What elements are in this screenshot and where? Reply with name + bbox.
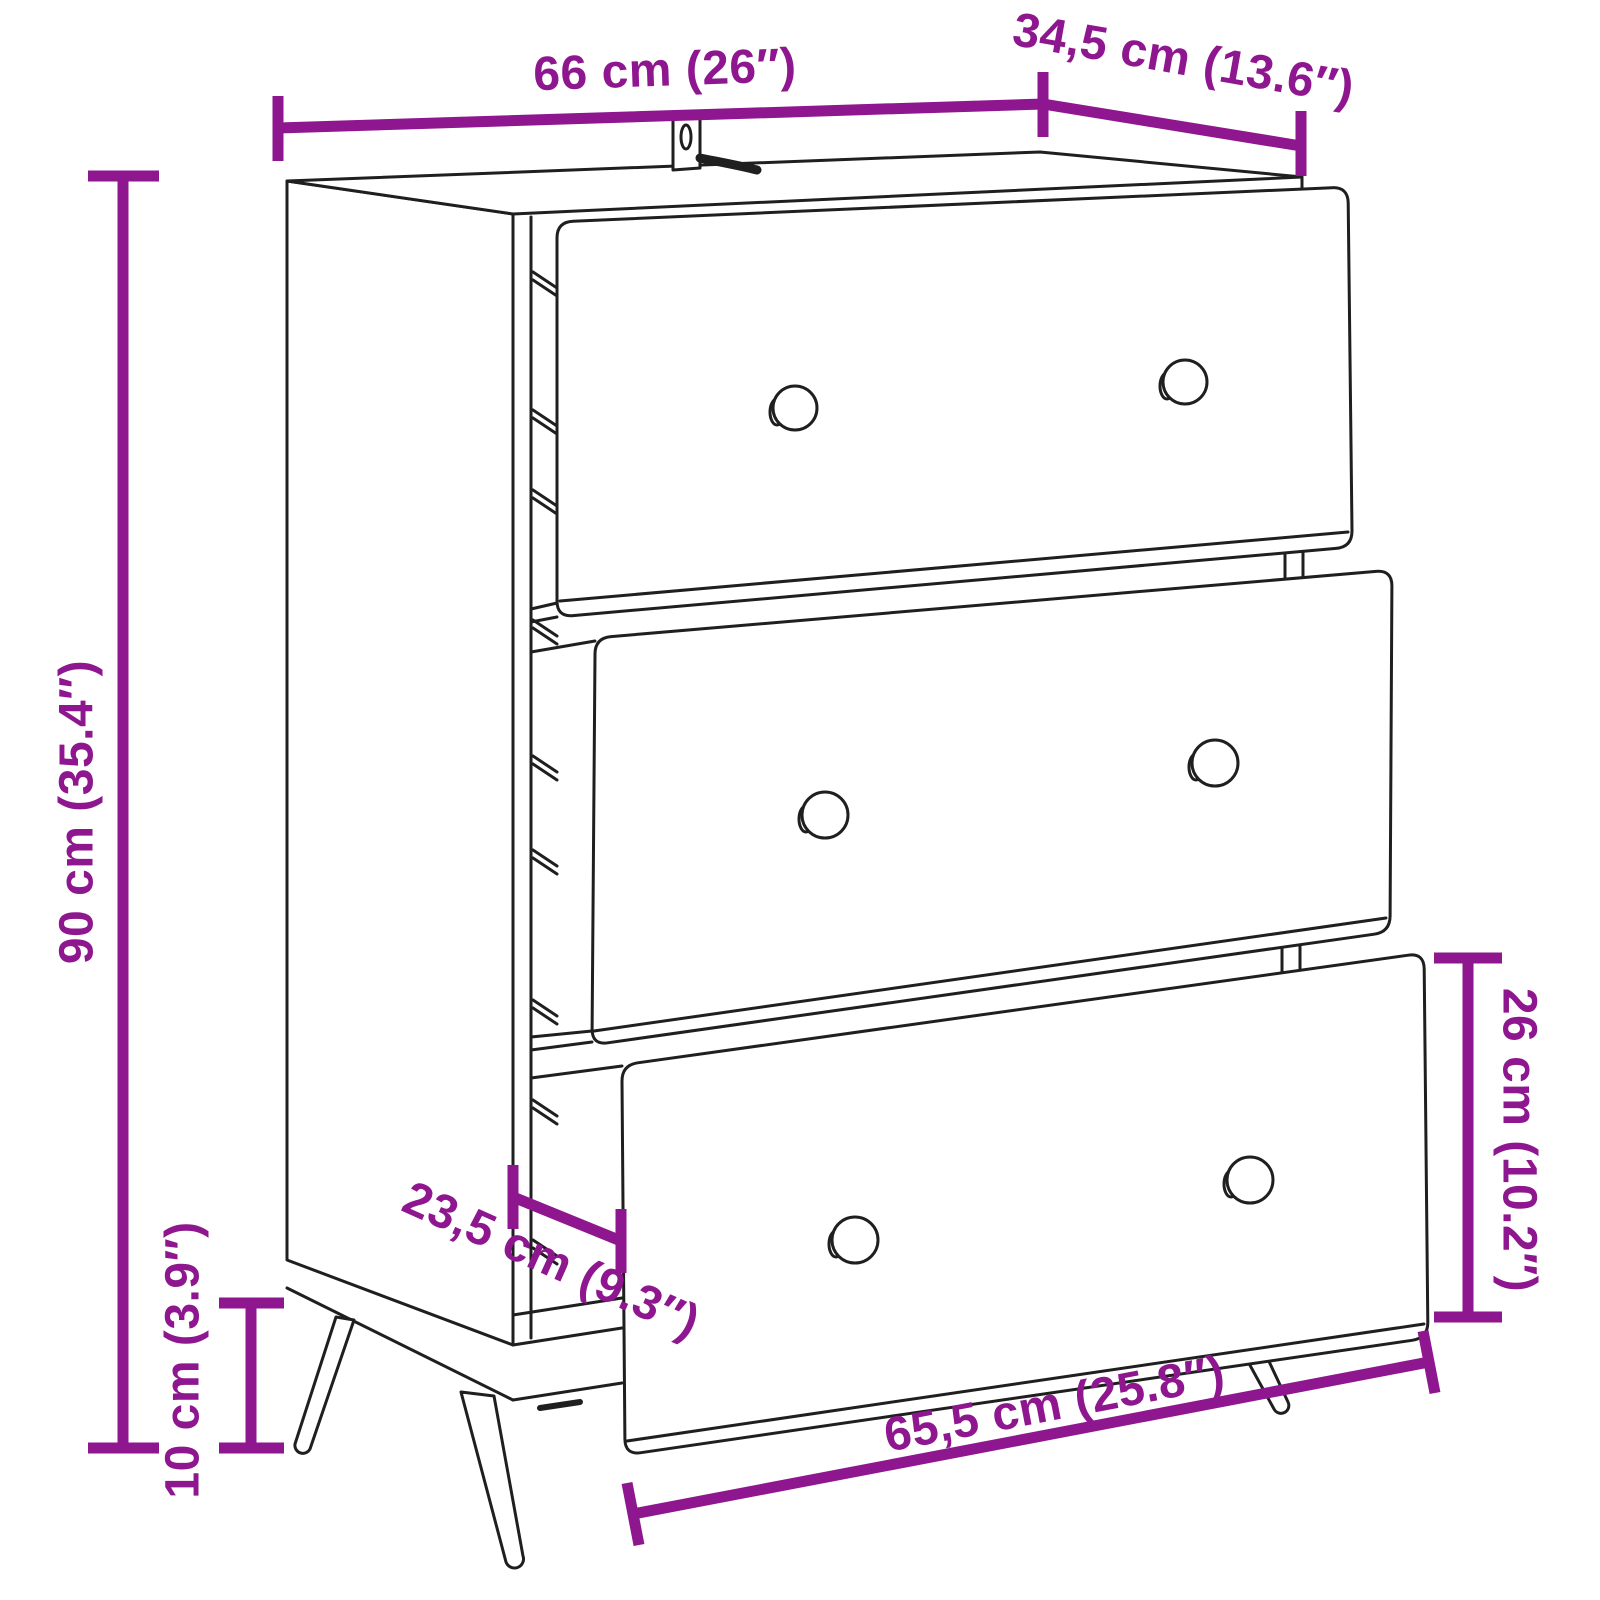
drawer-middle-front <box>592 571 1392 1043</box>
dimension-height: 90 cm (35.4″) <box>51 176 159 1448</box>
knob-face <box>1163 360 1207 404</box>
dimension-line <box>1434 958 1502 1317</box>
dimension-label-height: 90 cm (35.4″) <box>51 660 104 964</box>
dimension-drawer-height: 26 cm (10.2″) <box>1434 958 1545 1317</box>
diagram-canvas: 66 cm (26″) 34,5 cm (13.6″) 90 cm (35.4″… <box>0 0 1600 1600</box>
knob-face <box>832 1217 878 1263</box>
dimension-line <box>219 1303 284 1448</box>
drawer-middle <box>592 571 1392 1043</box>
knob-face <box>1192 740 1238 786</box>
leg-back-left <box>295 1317 354 1453</box>
knob-face <box>802 792 848 838</box>
dimension-label-width: 66 cm (26″) <box>532 39 797 101</box>
dimension-depth: 34,5 cm (13.6″) <box>1009 3 1358 176</box>
wall-bracket <box>673 113 757 170</box>
drawer-top-front <box>557 188 1352 616</box>
cabinet-drawing <box>287 113 1428 1568</box>
dimension-label-drawer-height: 26 cm (10.2″) <box>1492 988 1545 1292</box>
knob-face <box>773 386 817 430</box>
dimension-leg-height: 10 cm (3.9″) <box>157 1221 284 1498</box>
knob-face <box>1227 1157 1273 1203</box>
dimension-width: 66 cm (26″) <box>278 39 1043 161</box>
drawer-bottom-front <box>622 955 1428 1453</box>
side-panel <box>287 181 513 1345</box>
diagram-page: 66 cm (26″) 34,5 cm (13.6″) 90 cm (35.4″… <box>0 0 1600 1600</box>
bottom-shadow-mark <box>540 1402 580 1408</box>
wall-bracket-plate <box>673 113 700 170</box>
drawer-top <box>557 188 1352 616</box>
dimension-label-leg-height: 10 cm (3.9″) <box>157 1221 210 1498</box>
drawer-bottom <box>622 955 1428 1453</box>
drawer-slide-rails <box>533 272 557 1264</box>
leg-front-left <box>461 1392 524 1568</box>
dimension-label-depth: 34,5 cm (13.6″) <box>1009 3 1358 115</box>
